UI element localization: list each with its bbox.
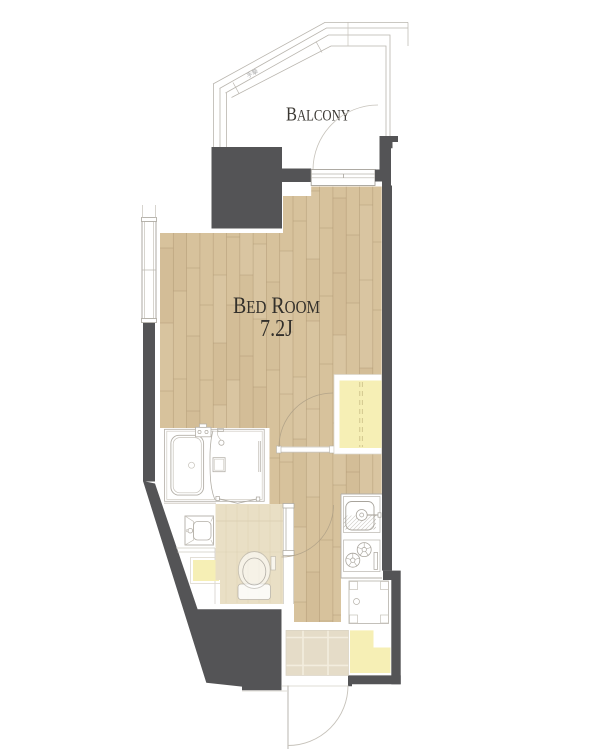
svg-text:BED ROOM: BED ROOM: [233, 293, 320, 318]
svg-text:BALCONY: BALCONY: [286, 104, 350, 126]
svg-text:手摰: 手摰: [245, 67, 259, 80]
svg-text:7.2J: 7.2J: [260, 316, 293, 342]
